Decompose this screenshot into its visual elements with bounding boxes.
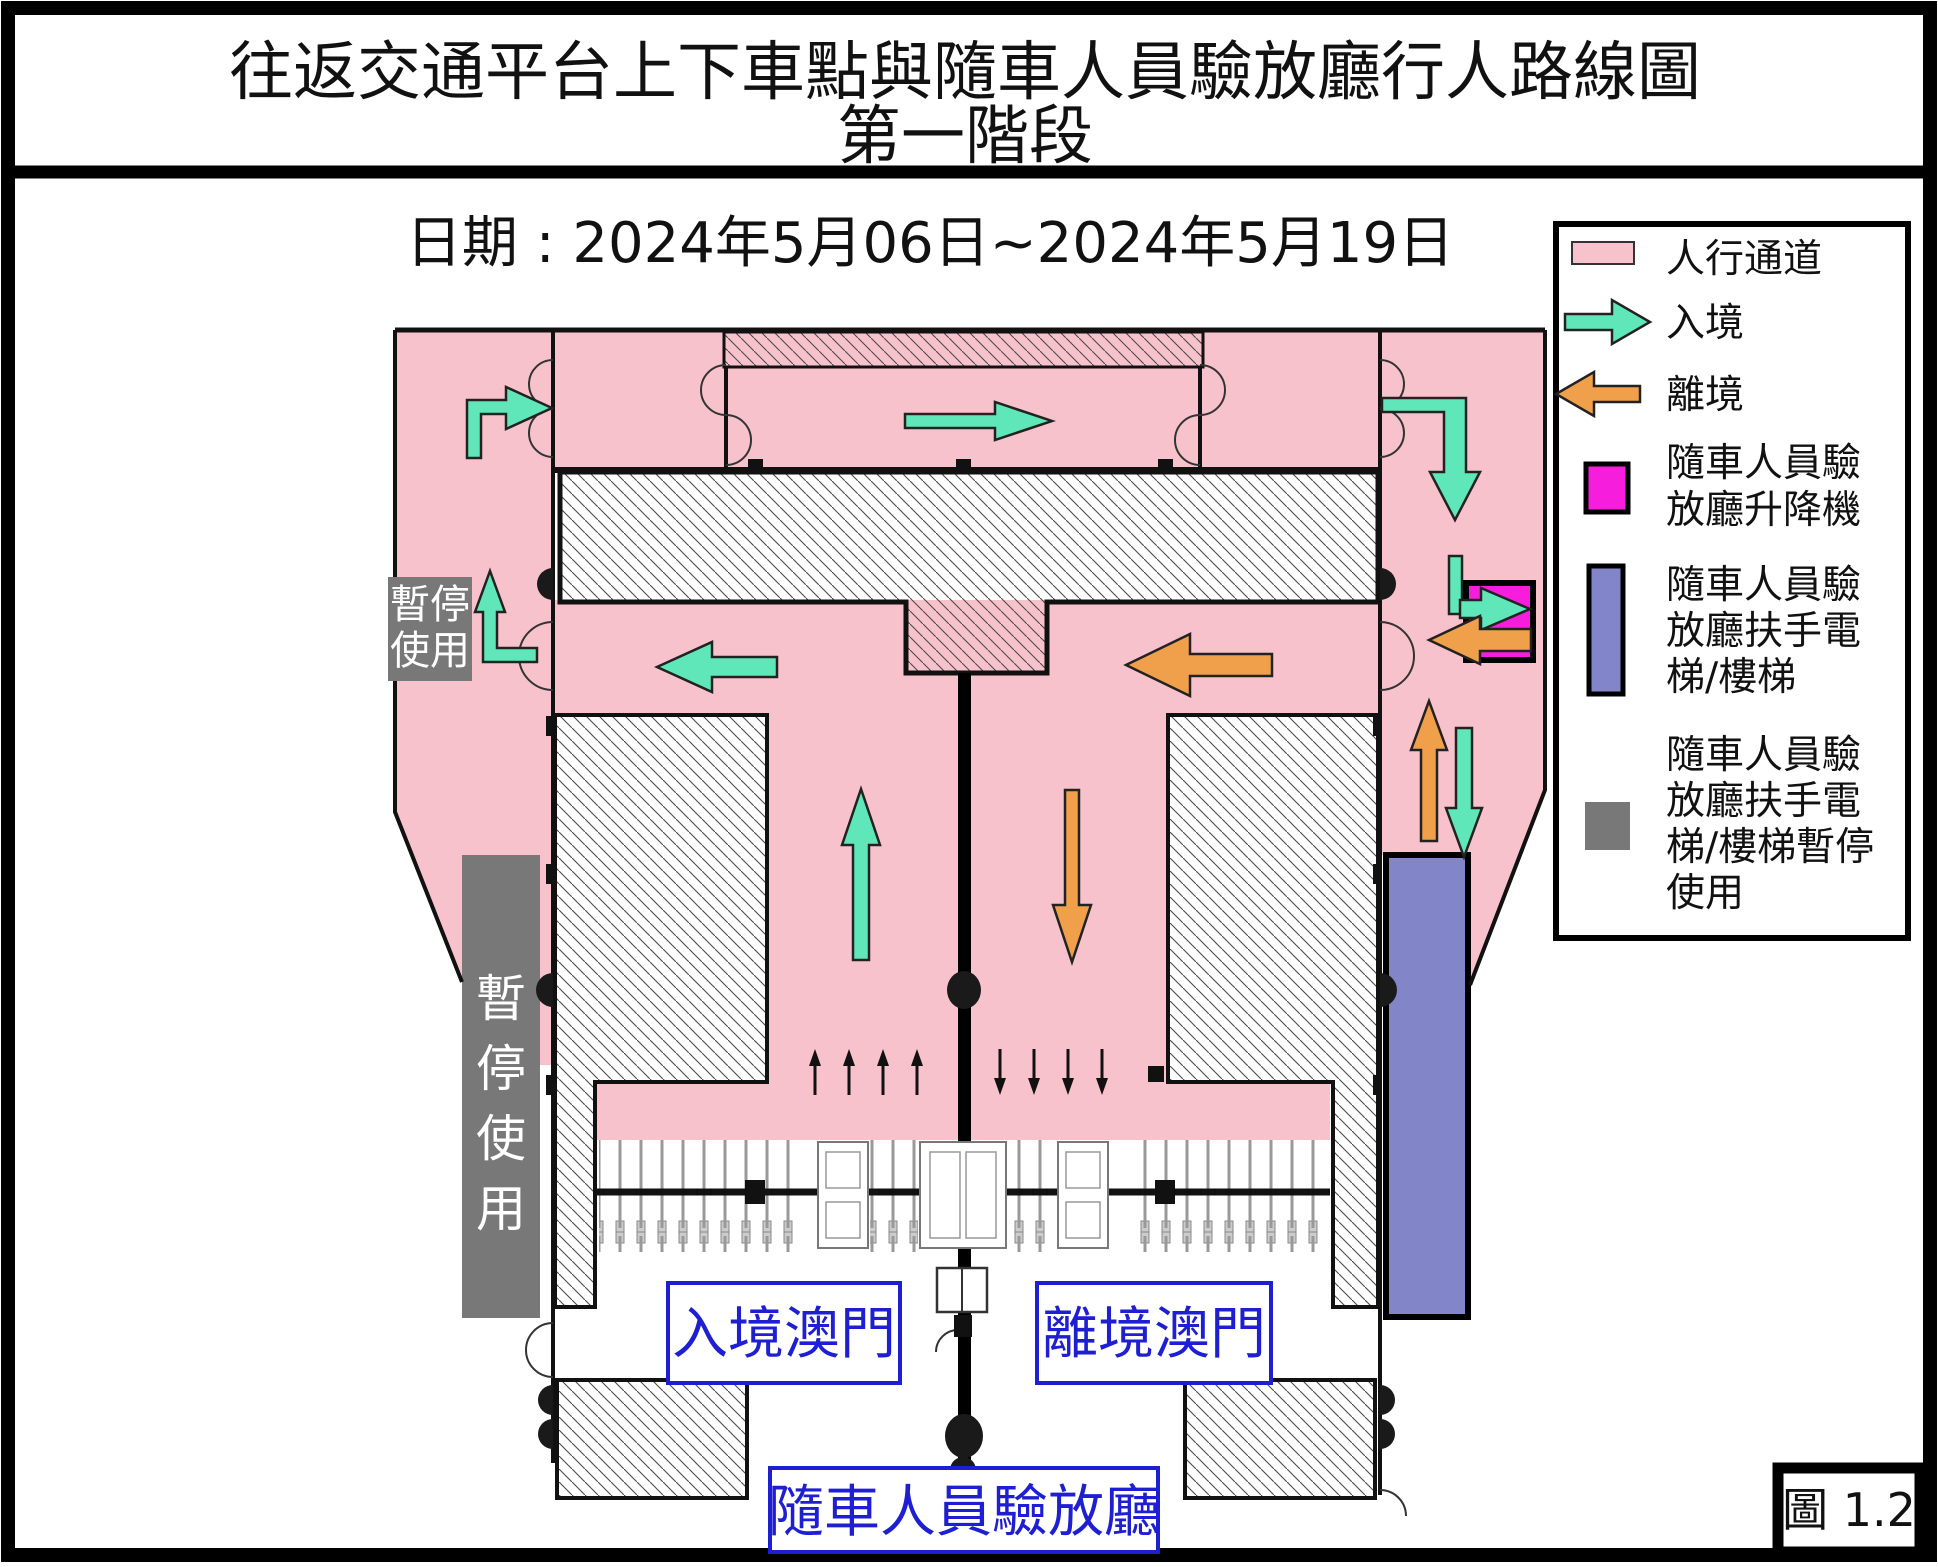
legend-suspended-line1: 隨車人員驗: [1666, 733, 1861, 778]
page-title: 往返交通平台上下車點與隨車人員驗放廳行人路線圖: [229, 36, 1701, 110]
legend-arrival-label: 入境: [1666, 301, 1744, 346]
legend-escalator-line3: 梯/樓梯: [1666, 655, 1796, 700]
pedestrian-swatch: [1572, 242, 1634, 264]
legend-suspended-line2: 放廳扶手電: [1666, 779, 1861, 824]
arrival-macau-label: 入境澳門: [672, 1302, 896, 1367]
legend-lift-line2: 放廳升降機: [1666, 488, 1861, 533]
hatched-block-bottom-left: [557, 1380, 747, 1498]
suspended-bar-char-3: 使: [476, 1110, 526, 1168]
escalator-swatch: [1589, 566, 1623, 694]
suspended-small-line1: 暫停: [390, 582, 470, 628]
page-subtitle: 第一階段: [837, 100, 1093, 174]
legend-escalator-line2: 放廳扶手電: [1666, 609, 1861, 654]
escalator-suspended-swatch: [1585, 802, 1630, 850]
route-map-drawing: 往返交通平台上下車點與隨車人員驗放廳行人路線圖 第一階段 日期 : 2024年5…: [0, 0, 1938, 1563]
suspended-label-small: 暫停 使用: [388, 577, 472, 681]
gate-machines: [818, 1142, 1108, 1248]
figure-number: 圖 1.2: [1778, 1468, 1920, 1552]
route-map-page: 往返交通平台上下車點與隨車人員驗放廳行人路線圖 第一階段 日期 : 2024年5…: [0, 0, 1938, 1563]
central-divider-wall: [958, 673, 971, 1460]
suspended-bar-char-4: 用: [476, 1180, 526, 1238]
legend-pedestrian-label: 人行通道: [1666, 237, 1822, 282]
suspended-small-line2: 使用: [390, 628, 470, 674]
suspended-bar-char-2: 停: [476, 1040, 526, 1098]
suspended-bar-char-1: 暫: [476, 970, 526, 1028]
floor-plan: 暫 停 使 用: [388, 330, 1545, 1552]
lift-swatch: [1586, 464, 1628, 512]
figure-number-label: 圖 1.2: [1782, 1483, 1916, 1537]
date-range-label: 日期 : 2024年5月06日~2024年5月19日: [406, 211, 1454, 276]
inspection-hall-escalator: [1386, 855, 1468, 1317]
inspection-hall-label: 隨車人員驗放廳: [768, 1480, 1160, 1545]
legend-suspended-line3: 梯/樓梯暫停: [1666, 825, 1874, 870]
legend-escalator-line1: 隨車人員驗: [1666, 563, 1861, 608]
legend-lift-line1: 隨車人員驗: [1666, 441, 1861, 486]
hatched-block-bottom-right: [1185, 1380, 1375, 1498]
legend: 人行通道 入境 離境 隨車人員驗 放廳升降機 隨車人員驗 放廳扶手電 梯/樓梯 …: [1556, 224, 1908, 938]
legend-departure-label: 離境: [1666, 373, 1744, 418]
hatched-block-top: [724, 332, 1203, 367]
legend-suspended-line4: 使用: [1666, 871, 1744, 916]
departure-macau-label: 離境澳門: [1042, 1302, 1266, 1367]
